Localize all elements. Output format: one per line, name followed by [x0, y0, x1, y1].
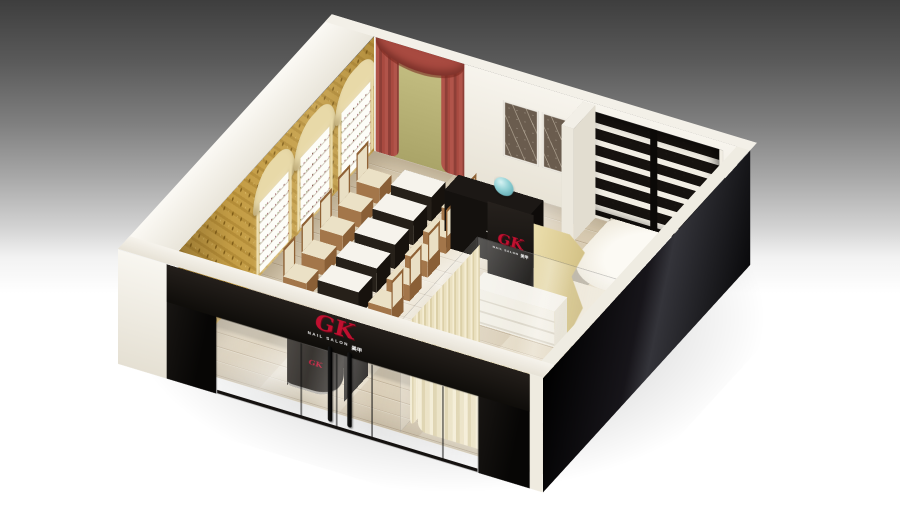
left-wall-end-cap: [118, 249, 167, 378]
back-partition-wall-f-front: [562, 125, 574, 242]
salon-3d-render: GK NAIL SALON美甲 GK NAIL SALON美甲 GK: [0, 0, 900, 515]
logo-cjk-mark: 美甲: [351, 345, 362, 354]
back-partition-wall-f-side-r: [574, 105, 595, 241]
glass-mullion: [371, 365, 373, 441]
door-handle: [328, 346, 332, 423]
right-wall-end-cap: [530, 374, 543, 492]
door-handle: [347, 352, 351, 429]
wall-art-panel: [503, 100, 538, 166]
glass-mullion: [336, 354, 338, 430]
glass-mullion: [300, 343, 302, 419]
glass-mullion: [442, 386, 444, 462]
